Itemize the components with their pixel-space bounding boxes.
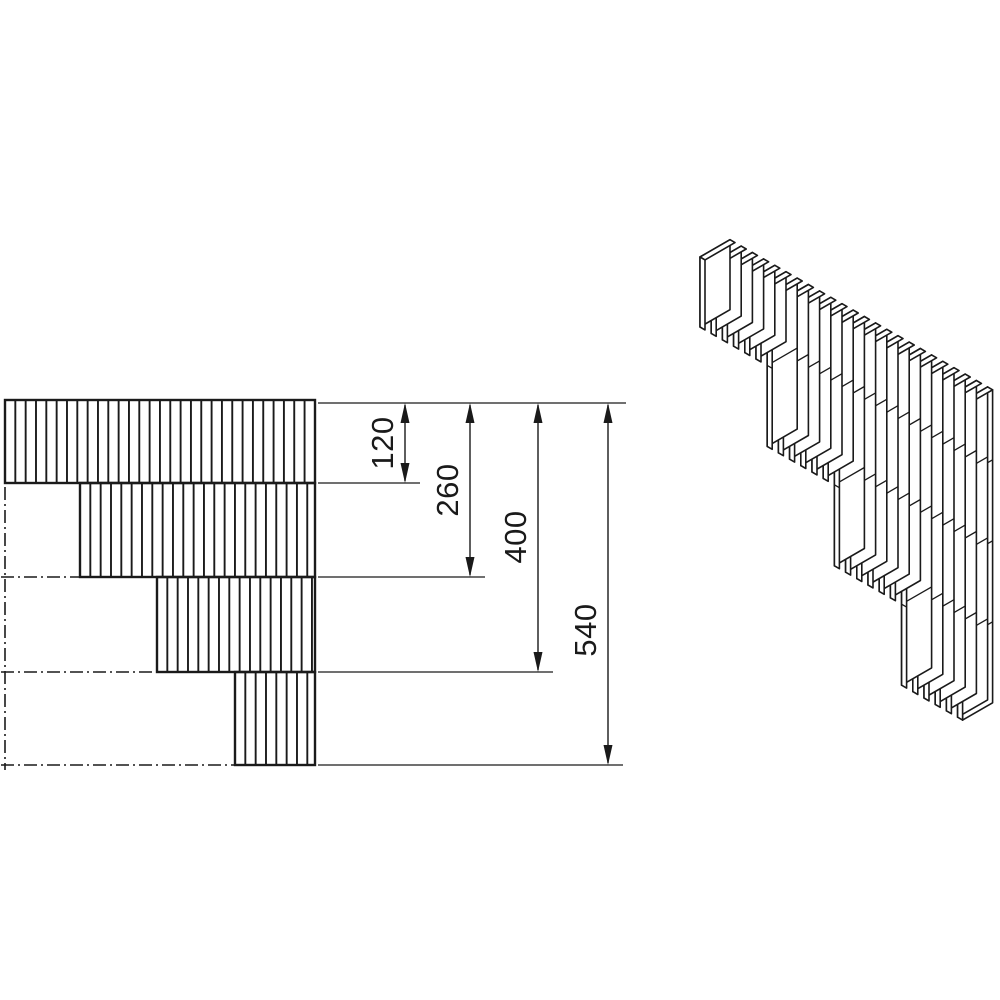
arrowhead-up: [604, 403, 613, 423]
dimension-label: 540: [568, 603, 603, 656]
arrowhead-down: [401, 463, 410, 483]
arrowhead-up: [466, 403, 475, 423]
isometric-view: [700, 240, 993, 720]
arrowhead-up: [401, 403, 410, 423]
slat-front-face: [700, 257, 705, 330]
arrowhead-down: [466, 557, 475, 577]
drawing-page: 120260400540: [0, 0, 1000, 1000]
dimension-label: 400: [498, 510, 533, 563]
arrowhead-up: [534, 403, 543, 423]
dimension-label: 260: [430, 463, 465, 516]
dimension-annotations: 120260400540: [318, 403, 626, 765]
dimension: 260: [318, 403, 485, 577]
hatched-course-row: [5, 400, 315, 483]
dimension: 400: [318, 403, 553, 672]
technical-drawing: 120260400540: [0, 0, 1000, 1000]
hatched-course-row: [235, 672, 315, 765]
front-elevation-view: [1, 400, 315, 770]
arrowhead-down: [604, 745, 613, 765]
dimension: 120: [318, 403, 420, 483]
hatched-course-row: [80, 483, 315, 577]
hatched-course-row: [157, 577, 315, 672]
course-outline: [235, 672, 315, 765]
course-outline: [80, 483, 315, 577]
arrowhead-down: [534, 652, 543, 672]
dimension-label: 120: [365, 416, 400, 469]
